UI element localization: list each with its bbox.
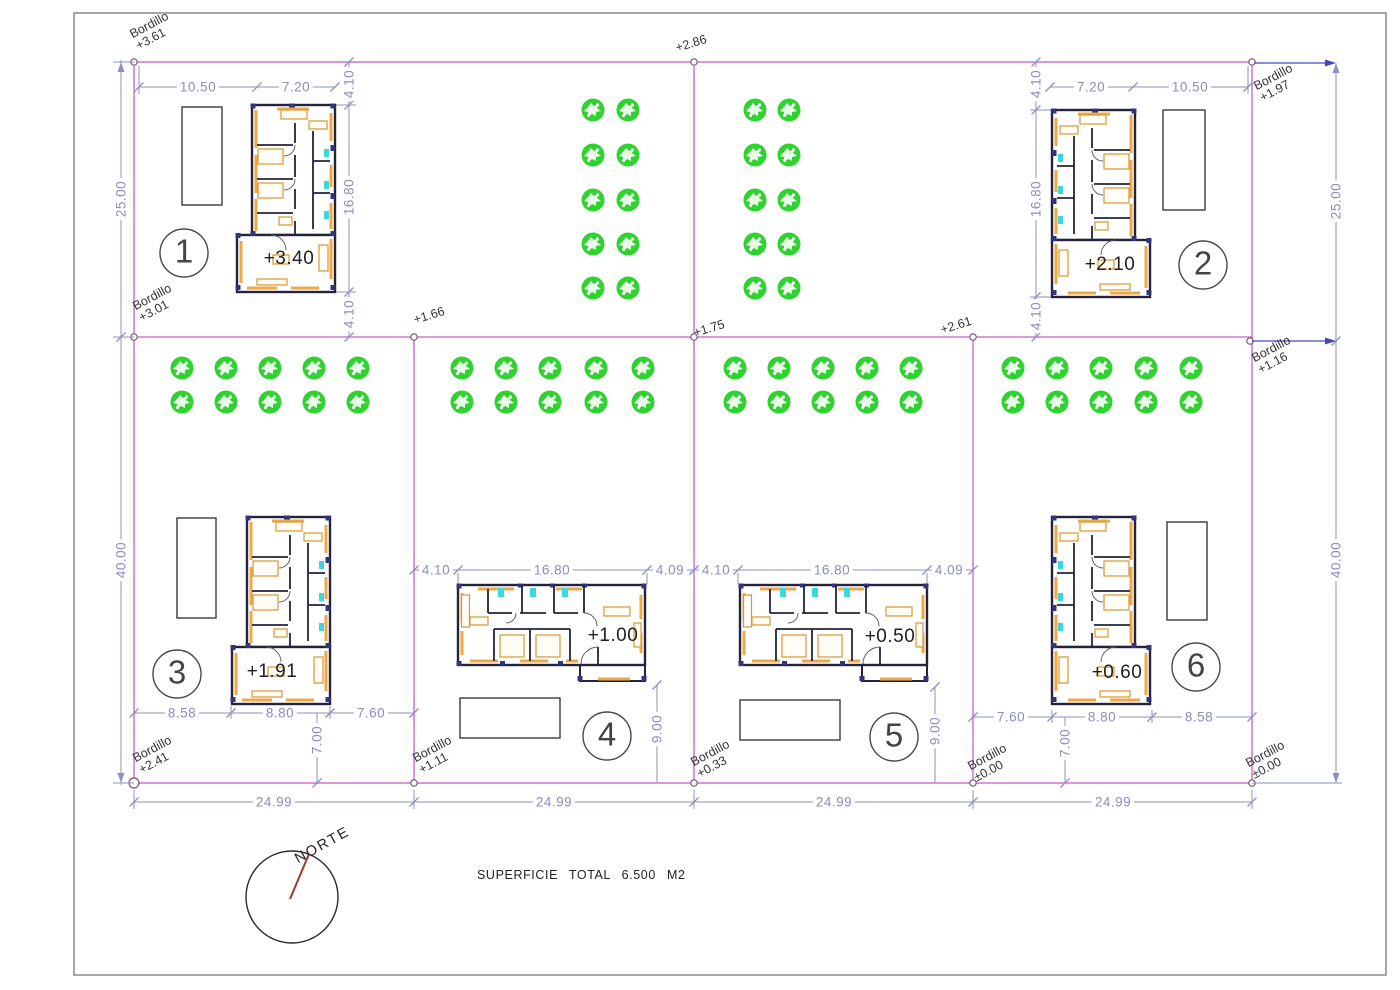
plot-number: 5 bbox=[885, 716, 903, 754]
house-elevation-label: +0.50 bbox=[865, 626, 916, 648]
dim-label: 7.00 bbox=[1058, 726, 1073, 760]
dim-label: 8.58 bbox=[1182, 710, 1216, 725]
house-elevation-label: +0.60 bbox=[1092, 662, 1143, 684]
dim-label: 25.00 bbox=[114, 178, 129, 220]
dim-label: 8.80 bbox=[1085, 710, 1119, 725]
dim-label: 8.80 bbox=[263, 706, 297, 721]
dim-label: 4.10 bbox=[1029, 67, 1044, 101]
dim-label: 16.80 bbox=[1029, 178, 1044, 220]
plot-number: 2 bbox=[1194, 244, 1212, 282]
dim-label: 24.99 bbox=[533, 795, 575, 810]
dim-label: 40.00 bbox=[114, 539, 129, 581]
dim-label: 7.20 bbox=[1074, 80, 1108, 95]
dim-label: 4.10 bbox=[699, 563, 733, 578]
house-elevation-label: +3.40 bbox=[264, 248, 315, 270]
house-elevation-label: +1.00 bbox=[588, 625, 639, 647]
dim-label: 16.80 bbox=[811, 563, 853, 578]
dim-label: 24.99 bbox=[253, 795, 295, 810]
site-plan-drawing bbox=[0, 0, 1400, 990]
dim-label: 25.00 bbox=[1329, 180, 1344, 222]
site-plan-sheet: Bordillo+3.61 Bordillo+1.97 Bordillo+3.0… bbox=[0, 0, 1400, 990]
house-elevation-label: +2.10 bbox=[1085, 254, 1136, 276]
dim-label: 7.60 bbox=[994, 710, 1028, 725]
plot-number: 4 bbox=[598, 715, 616, 753]
dim-label: 24.99 bbox=[813, 795, 855, 810]
dim-label: 4.10 bbox=[342, 67, 357, 101]
dim-label: 4.09 bbox=[653, 563, 687, 578]
dim-label: 8.58 bbox=[165, 706, 199, 721]
dim-label: 4.10 bbox=[1029, 299, 1044, 333]
dim-label: 24.99 bbox=[1092, 795, 1134, 810]
dim-label: 9.00 bbox=[650, 712, 665, 746]
total-area-label: SUPERFICIE TOTAL 6.500 M2 bbox=[477, 868, 686, 882]
plot-number: 6 bbox=[1187, 646, 1205, 684]
north-compass-icon bbox=[246, 851, 338, 943]
plot-number: 3 bbox=[168, 653, 186, 691]
house-elevation-label: +1.91 bbox=[247, 661, 298, 683]
dim-label: 4.09 bbox=[932, 563, 966, 578]
dim-label: 16.80 bbox=[342, 176, 357, 218]
dim-label: 40.00 bbox=[1329, 539, 1344, 581]
dim-label: 16.80 bbox=[531, 563, 573, 578]
plot-number: 1 bbox=[175, 232, 193, 270]
dim-label: 7.00 bbox=[310, 723, 325, 757]
dim-label: 7.60 bbox=[354, 706, 388, 721]
dim-label: 4.10 bbox=[419, 563, 453, 578]
dim-label: 10.50 bbox=[177, 80, 219, 95]
dim-label: 10.50 bbox=[1169, 80, 1211, 95]
dim-label: 7.20 bbox=[279, 80, 313, 95]
dim-label: 4.10 bbox=[342, 297, 357, 331]
dim-label: 9.00 bbox=[928, 714, 943, 748]
